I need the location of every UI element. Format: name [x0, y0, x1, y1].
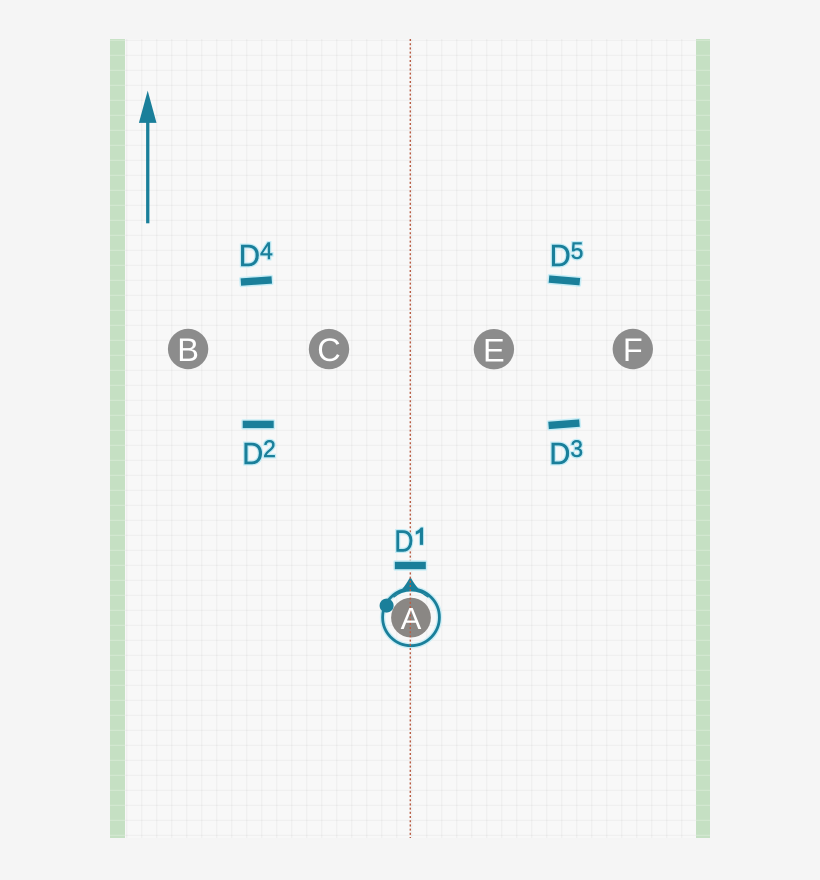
svg-text:D3: D3 [549, 436, 583, 471]
svg-text:F: F [623, 332, 643, 368]
svg-text:A: A [401, 601, 422, 636]
svg-text:C: C [317, 332, 340, 368]
svg-text:D4: D4 [239, 238, 273, 273]
svg-text:D2: D2 [242, 436, 276, 471]
svg-text:B: B [177, 332, 199, 368]
svg-text:D5: D5 [550, 238, 584, 273]
svg-text:D: D [394, 525, 413, 559]
svg-text:E: E [483, 332, 505, 368]
